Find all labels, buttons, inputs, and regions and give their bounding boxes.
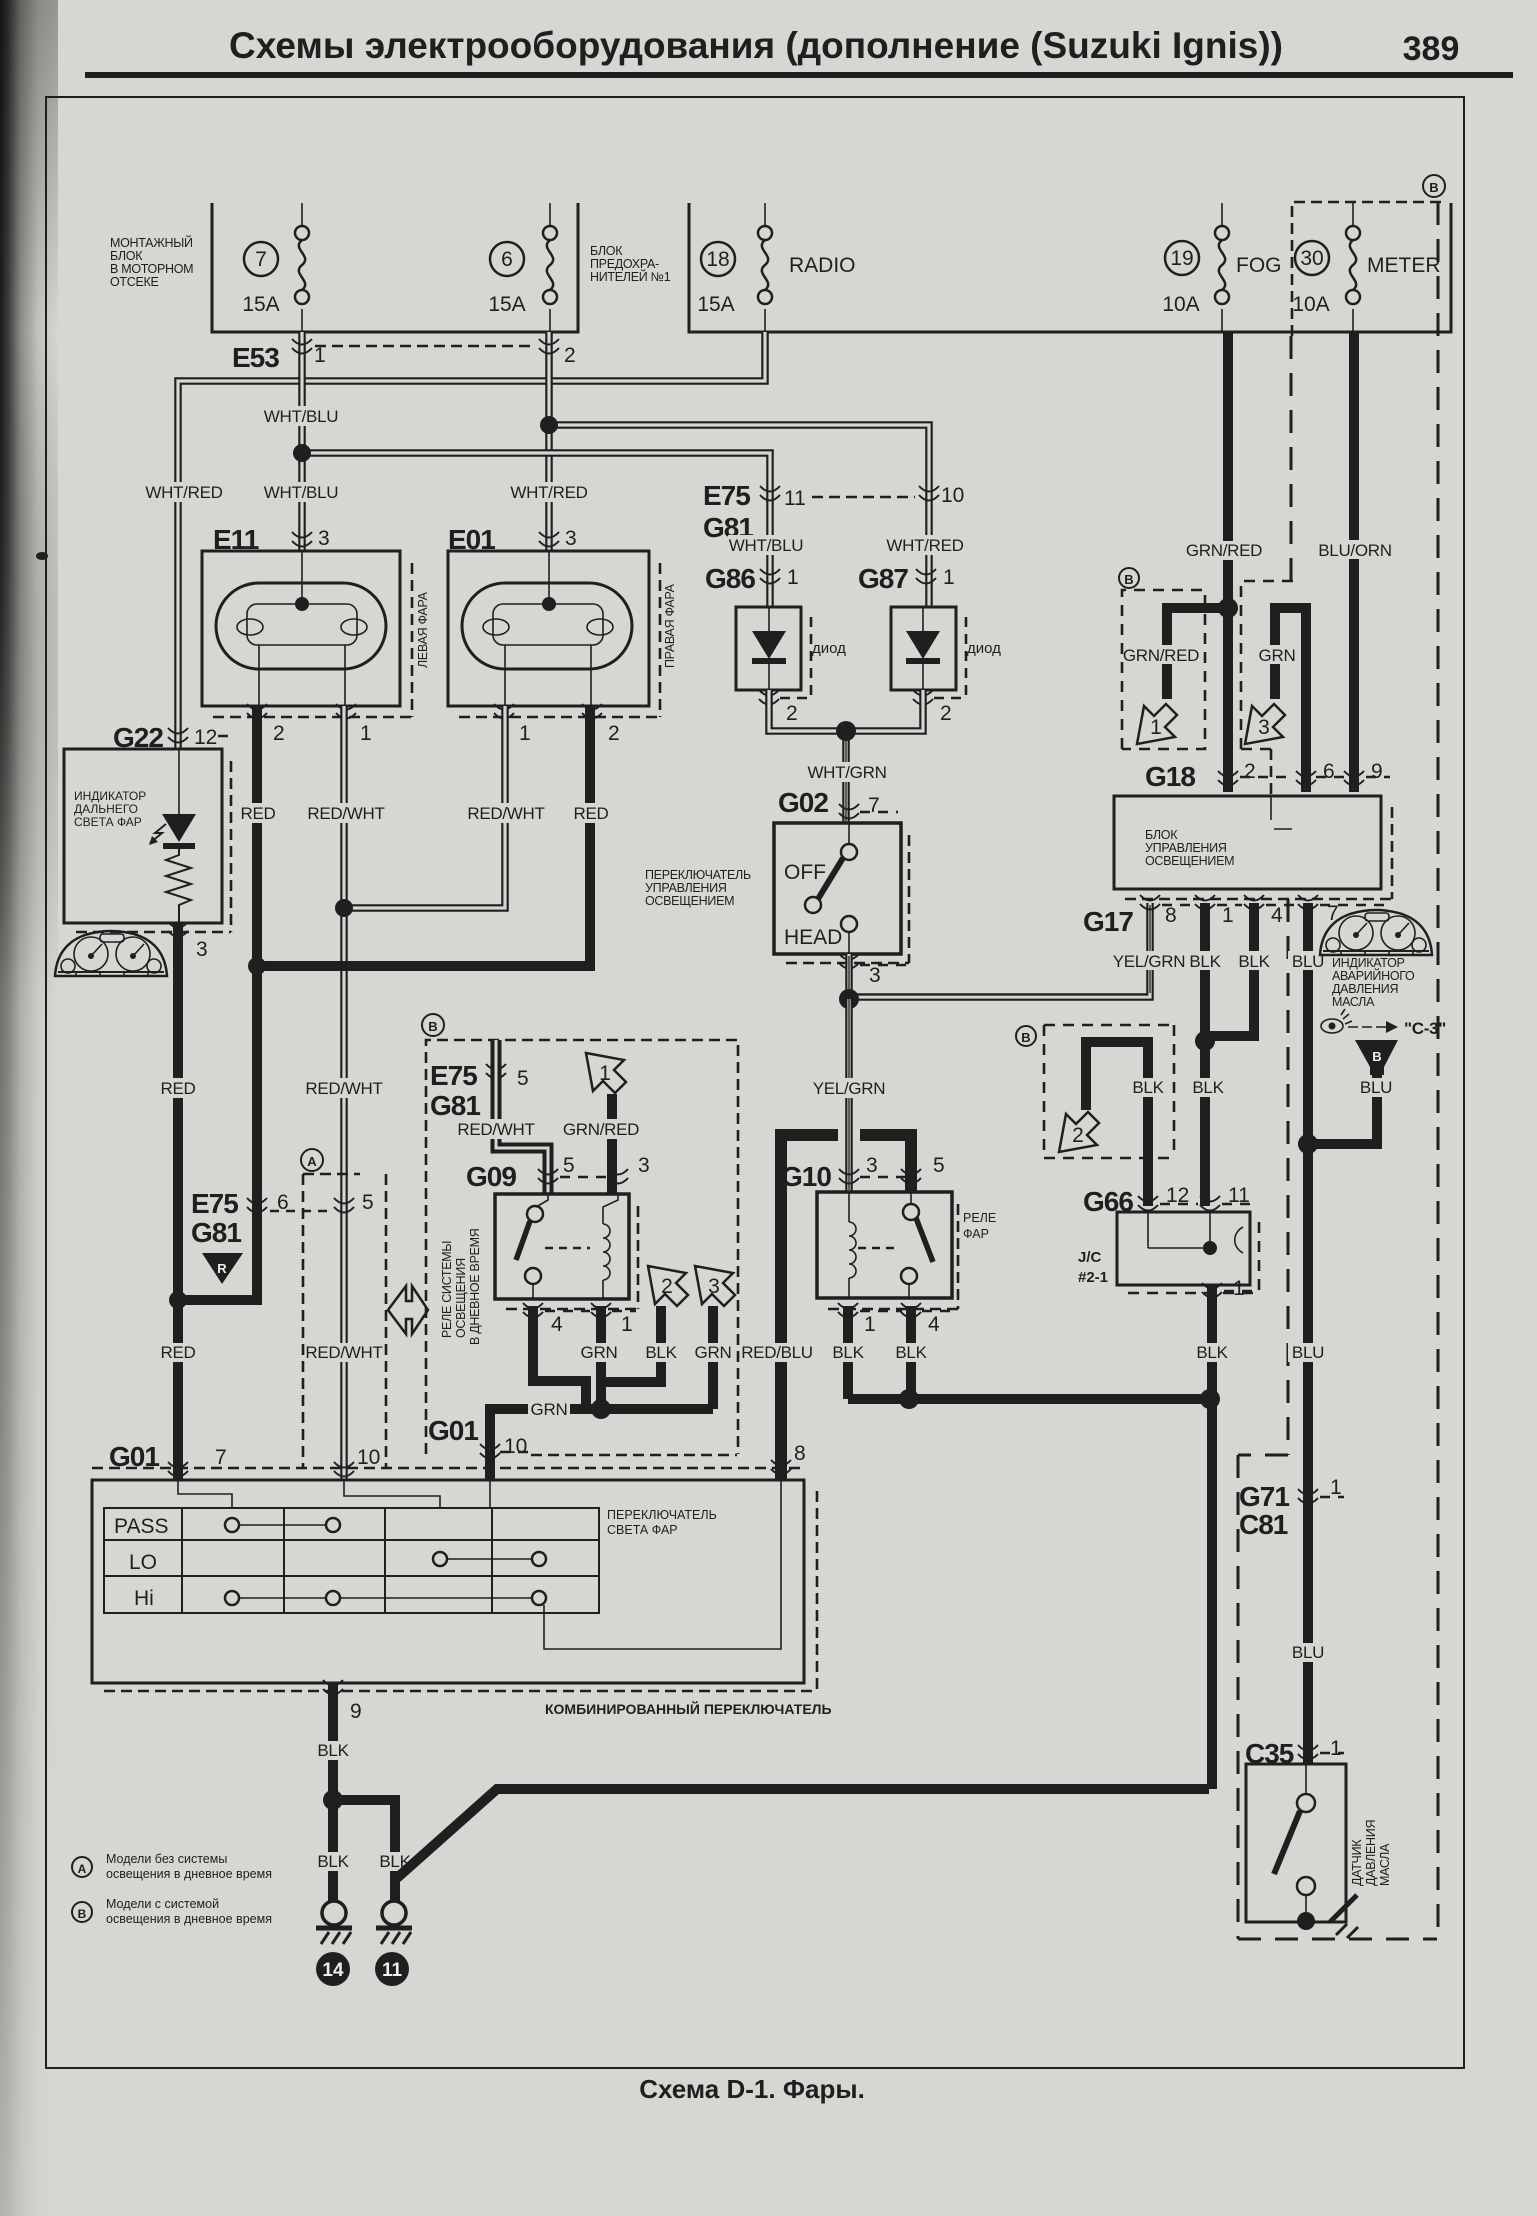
svg-text:G01: G01 <box>428 1415 478 1446</box>
svg-text:Hi: Hi <box>134 1587 154 1610</box>
svg-text:WHT/RED: WHT/RED <box>886 536 963 555</box>
svg-text:2: 2 <box>940 702 952 725</box>
svg-text:ДАВЛЕНИЯ: ДАВЛЕНИЯ <box>1332 982 1398 996</box>
svg-text:E53: E53 <box>232 342 279 373</box>
svg-text:2: 2 <box>564 344 576 367</box>
svg-text:OFF: OFF <box>784 861 826 884</box>
svg-text:WHT/BLU: WHT/BLU <box>729 536 803 555</box>
svg-text:1: 1 <box>943 566 955 589</box>
svg-text:УПРАВЛЕНИЯ: УПРАВЛЕНИЯ <box>1145 841 1227 855</box>
svg-text:BLK: BLK <box>1238 952 1270 971</box>
svg-text:ПРЕДОХРА-: ПРЕДОХРА- <box>590 257 659 271</box>
svg-text:BLU: BLU <box>1292 1343 1324 1362</box>
svg-text:МОНТАЖНЫЙ: МОНТАЖНЫЙ <box>110 235 193 250</box>
svg-text:RED: RED <box>241 804 276 823</box>
svg-text:3: 3 <box>708 1275 720 1298</box>
svg-text:3: 3 <box>318 527 330 550</box>
svg-text:ПРАВАЯ ФАРА: ПРАВАЯ ФАРА <box>663 583 677 668</box>
svg-text:УПРАВЛЕНИЯ: УПРАВЛЕНИЯ <box>645 881 727 895</box>
svg-text:2: 2 <box>608 722 620 745</box>
svg-text:E75: E75 <box>191 1188 238 1219</box>
svg-text:2: 2 <box>786 702 798 725</box>
svg-text:BLK: BLK <box>1192 1078 1224 1097</box>
svg-text:GRN: GRN <box>581 1343 618 1362</box>
svg-text:3: 3 <box>565 527 577 550</box>
svg-text:2: 2 <box>661 1275 673 1298</box>
svg-text:GRN/RED: GRN/RED <box>1186 541 1262 560</box>
svg-text:BLU: BLU <box>1360 1078 1392 1097</box>
svg-text:YEL/GRN: YEL/GRN <box>1113 952 1186 971</box>
svg-text:"C-3": "C-3" <box>1404 1019 1446 1038</box>
svg-text:RED/BLU: RED/BLU <box>741 1343 813 1362</box>
svg-text:11: 11 <box>382 1960 403 1981</box>
svg-text:J/C: J/C <box>1078 1249 1102 1266</box>
svg-text:BLK: BLK <box>1132 1078 1164 1097</box>
svg-text:диод: диод <box>812 640 846 657</box>
svg-text:LO: LO <box>129 1551 157 1574</box>
svg-text:10A: 10A <box>1292 293 1329 316</box>
svg-text:B: B <box>1124 572 1133 587</box>
svg-text:9: 9 <box>1371 760 1383 783</box>
svg-text:WHT/RED: WHT/RED <box>145 483 222 502</box>
svg-text:ЛЕВАЯ ФАРА: ЛЕВАЯ ФАРА <box>416 591 430 668</box>
svg-text:В МОТОРНОМ: В МОТОРНОМ <box>110 262 193 276</box>
svg-text:G02: G02 <box>778 787 828 818</box>
svg-text:8: 8 <box>1165 904 1177 927</box>
svg-text:METER: METER <box>1367 254 1441 277</box>
svg-text:ОСВЕЩЕНИЕМ: ОСВЕЩЕНИЕМ <box>1145 854 1234 868</box>
svg-text:10: 10 <box>941 484 964 507</box>
svg-text:5: 5 <box>933 1154 945 1177</box>
svg-text:ОСВЕЩЕНИЯ: ОСВЕЩЕНИЯ <box>454 1258 468 1338</box>
svg-text:Модели без системы: Модели без системы <box>106 1852 227 1866</box>
svg-text:1: 1 <box>1330 1737 1342 1760</box>
svg-text:6: 6 <box>501 248 513 271</box>
svg-text:G10: G10 <box>781 1161 831 1192</box>
svg-text:RADIO: RADIO <box>789 254 856 277</box>
svg-text:RED/WHT: RED/WHT <box>307 804 384 823</box>
svg-text:ДАВЛЕНИЯ: ДАВЛЕНИЯ <box>1364 1820 1378 1886</box>
svg-text:RED: RED <box>161 1343 196 1362</box>
svg-text:ДАЛЬНЕГО: ДАЛЬНЕГО <box>74 802 138 816</box>
svg-text:FOG: FOG <box>1236 254 1282 277</box>
svg-text:9: 9 <box>350 1700 362 1723</box>
svg-text:WHT/BLU: WHT/BLU <box>264 407 338 426</box>
svg-text:7: 7 <box>215 1446 227 1469</box>
svg-text:#2-1: #2-1 <box>1078 1269 1108 1286</box>
svg-text:GRN: GRN <box>695 1343 732 1362</box>
svg-text:5: 5 <box>563 1154 575 1177</box>
svg-text:ФАР: ФАР <box>963 1227 989 1241</box>
svg-text:ОТСЕКЕ: ОТСЕКЕ <box>110 275 159 289</box>
svg-text:8: 8 <box>794 1442 806 1465</box>
svg-text:B: B <box>1372 1049 1381 1064</box>
svg-text:ИНДИКАТОР: ИНДИКАТОР <box>1332 956 1405 970</box>
svg-text:ИНДИКАТОР: ИНДИКАТОР <box>74 789 146 803</box>
svg-text:YEL/GRN: YEL/GRN <box>813 1079 886 1098</box>
svg-text:СВЕТА ФАР: СВЕТА ФАР <box>74 815 142 829</box>
svg-text:7: 7 <box>255 248 267 271</box>
svg-text:освещения в дневное время: освещения в дневное время <box>106 1867 272 1881</box>
svg-text:G81: G81 <box>191 1217 241 1248</box>
svg-text:GRN/RED: GRN/RED <box>1123 646 1199 665</box>
svg-text:РЕЛЕ СИСТЕМЫ: РЕЛЕ СИСТЕМЫ <box>440 1241 454 1338</box>
svg-text:7: 7 <box>868 794 880 817</box>
svg-text:GRN: GRN <box>1259 646 1296 665</box>
svg-text:В ДНЕВНОЕ ВРЕМЯ: В ДНЕВНОЕ ВРЕМЯ <box>468 1228 482 1345</box>
svg-text:BLU: BLU <box>1292 1643 1324 1662</box>
svg-text:Модели с системой: Модели с системой <box>106 1897 219 1911</box>
svg-text:3: 3 <box>196 938 208 961</box>
svg-text:НИТЕЛЕЙ №1: НИТЕЛЕЙ №1 <box>590 269 671 284</box>
svg-text:G86: G86 <box>705 563 755 594</box>
svg-text:КОМБИНИРОВАННЫЙ ПЕРЕКЛЮЧАТЕЛЬ: КОМБИНИРОВАННЫЙ ПЕРЕКЛЮЧАТЕЛЬ <box>545 1700 832 1717</box>
svg-text:1: 1 <box>864 1313 876 1336</box>
svg-text:12: 12 <box>194 726 217 749</box>
svg-text:10A: 10A <box>1162 293 1199 316</box>
svg-text:19: 19 <box>1170 247 1193 270</box>
svg-text:5: 5 <box>517 1067 529 1090</box>
svg-text:389: 389 <box>1403 30 1460 68</box>
svg-text:B: B <box>428 1019 437 1034</box>
svg-text:RED/WHT: RED/WHT <box>457 1120 534 1139</box>
svg-text:СВЕТА ФАР: СВЕТА ФАР <box>607 1523 678 1537</box>
svg-text:WHT/BLU: WHT/BLU <box>264 483 338 502</box>
svg-text:15A: 15A <box>488 293 525 316</box>
svg-text:BLK: BLK <box>1189 952 1221 971</box>
svg-text:C81: C81 <box>1239 1509 1288 1540</box>
svg-text:Схемы электрооборудования (доп: Схемы электрооборудования (дополнение (S… <box>229 25 1283 66</box>
svg-text:освещения в дневное время: освещения в дневное время <box>106 1912 272 1926</box>
svg-text:BLK: BLK <box>317 1852 349 1871</box>
svg-text:15A: 15A <box>697 293 734 316</box>
svg-text:1: 1 <box>1222 904 1234 927</box>
svg-text:10: 10 <box>504 1435 527 1458</box>
svg-text:G71: G71 <box>1239 1481 1289 1512</box>
svg-text:BLK: BLK <box>317 1741 349 1760</box>
svg-text:A: A <box>78 1862 87 1876</box>
svg-text:2: 2 <box>1072 1124 1084 1147</box>
svg-text:G87: G87 <box>858 563 908 594</box>
svg-text:B: B <box>78 1907 87 1921</box>
svg-text:1: 1 <box>787 566 799 589</box>
svg-text:МАСЛА: МАСЛА <box>1378 1843 1392 1886</box>
svg-text:HEAD: HEAD <box>784 926 842 949</box>
svg-text:ПЕРЕКЛЮЧАТЕЛЬ: ПЕРЕКЛЮЧАТЕЛЬ <box>607 1508 717 1522</box>
svg-text:G81: G81 <box>430 1090 480 1121</box>
svg-text:WHT/GRN: WHT/GRN <box>807 763 886 782</box>
svg-text:6: 6 <box>1323 760 1335 783</box>
svg-text:РЕЛЕ: РЕЛЕ <box>963 1211 996 1225</box>
svg-text:14: 14 <box>322 1960 344 1981</box>
svg-text:RED: RED <box>161 1079 196 1098</box>
svg-text:ОСВЕЩЕНИЕМ: ОСВЕЩЕНИЕМ <box>645 894 734 908</box>
svg-text:1: 1 <box>1150 716 1162 739</box>
svg-text:RED/WHT: RED/WHT <box>305 1343 382 1362</box>
svg-text:G17: G17 <box>1083 906 1133 937</box>
svg-text:Схема D-1. Фары.: Схема D-1. Фары. <box>639 2074 865 2104</box>
svg-text:БЛОК: БЛОК <box>1145 828 1178 842</box>
svg-text:БЛОК: БЛОК <box>110 249 143 263</box>
svg-text:BLK: BLK <box>1196 1343 1228 1362</box>
svg-text:4: 4 <box>551 1313 563 1336</box>
svg-text:G01: G01 <box>109 1441 159 1472</box>
svg-text:E75: E75 <box>430 1060 477 1091</box>
svg-text:GRN/RED: GRN/RED <box>563 1120 639 1139</box>
svg-text:GRN: GRN <box>531 1400 568 1419</box>
svg-text:BLU/ORN: BLU/ORN <box>1318 541 1391 560</box>
svg-text:RED/WHT: RED/WHT <box>305 1079 382 1098</box>
svg-text:A: A <box>307 1154 317 1169</box>
svg-text:10: 10 <box>357 1446 380 1469</box>
svg-text:диод: диод <box>967 640 1001 657</box>
svg-text:3: 3 <box>869 964 881 987</box>
svg-text:1: 1 <box>314 344 326 367</box>
svg-text:3: 3 <box>1258 716 1270 739</box>
svg-text:1: 1 <box>599 1062 611 1085</box>
svg-text:АВАРИЙНОГО: АВАРИЙНОГО <box>1332 968 1415 983</box>
svg-text:B: B <box>1021 1030 1030 1045</box>
svg-text:5: 5 <box>362 1191 374 1214</box>
svg-text:1: 1 <box>519 722 531 745</box>
svg-text:BLK: BLK <box>895 1343 927 1362</box>
svg-text:15A: 15A <box>242 293 279 316</box>
svg-text:3: 3 <box>866 1154 878 1177</box>
svg-text:RED/WHT: RED/WHT <box>467 804 544 823</box>
svg-text:3: 3 <box>638 1154 650 1177</box>
svg-text:PASS: PASS <box>114 1515 168 1538</box>
svg-text:E75: E75 <box>703 480 750 511</box>
svg-text:B: B <box>1429 180 1438 195</box>
svg-text:БЛОК: БЛОК <box>590 244 623 258</box>
svg-text:30: 30 <box>1300 247 1323 270</box>
svg-text:4: 4 <box>928 1313 940 1336</box>
svg-text:ПЕРЕКЛЮЧАТЕЛЬ: ПЕРЕКЛЮЧАТЕЛЬ <box>645 868 751 882</box>
svg-text:1: 1 <box>1330 1476 1342 1499</box>
svg-text:МАСЛА: МАСЛА <box>1332 995 1375 1009</box>
svg-text:2: 2 <box>1244 760 1256 783</box>
svg-text:ДАТЧИК: ДАТЧИК <box>1350 1839 1364 1886</box>
svg-text:1: 1 <box>621 1313 633 1336</box>
svg-text:G09: G09 <box>466 1161 516 1192</box>
svg-text:G18: G18 <box>1145 761 1195 792</box>
svg-text:18: 18 <box>706 248 729 271</box>
svg-text:2: 2 <box>273 722 285 745</box>
svg-text:WHT/RED: WHT/RED <box>510 483 587 502</box>
svg-text:11: 11 <box>784 487 806 510</box>
svg-text:R: R <box>217 1261 227 1276</box>
svg-text:1: 1 <box>1233 1277 1245 1300</box>
svg-text:BLK: BLK <box>832 1343 864 1362</box>
svg-text:1: 1 <box>360 722 372 745</box>
svg-text:4: 4 <box>1271 904 1283 927</box>
svg-text:BLK: BLK <box>645 1343 677 1362</box>
svg-text:RED: RED <box>574 804 609 823</box>
